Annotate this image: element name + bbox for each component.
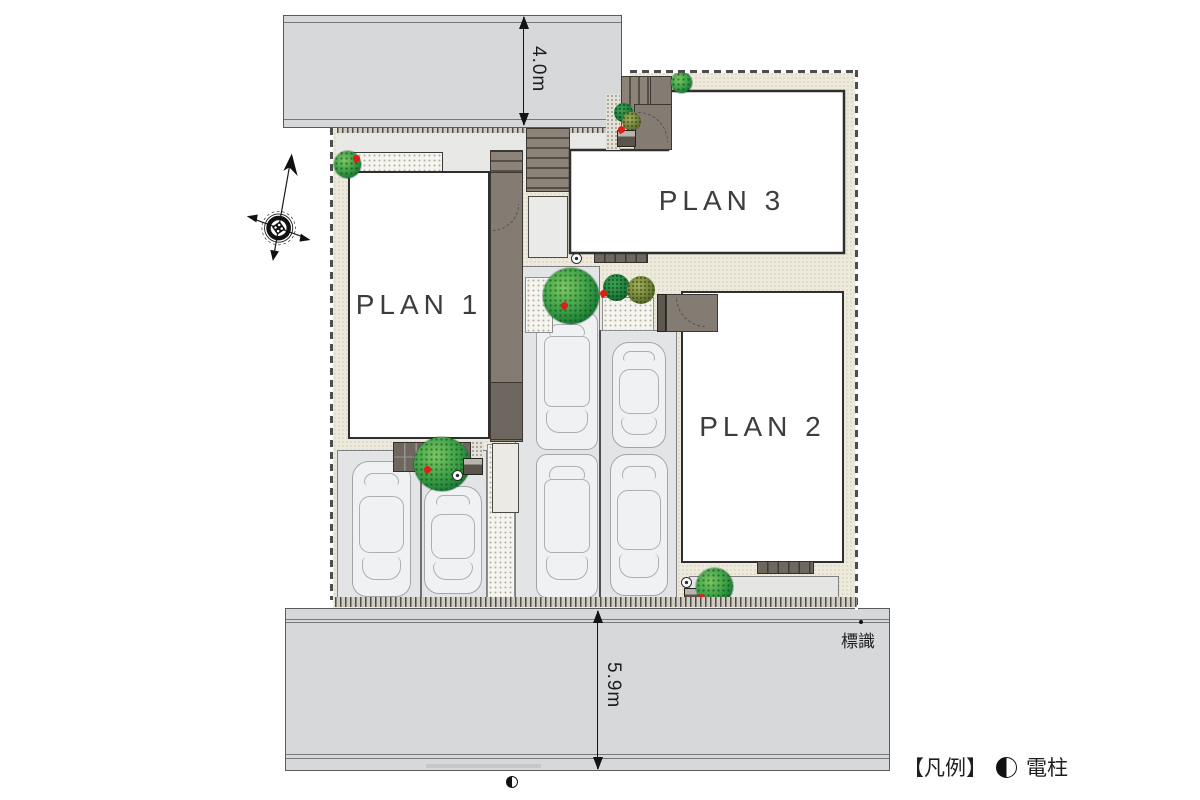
car-roof [544, 336, 591, 407]
plan1-label: PLAN 1 [348, 171, 490, 439]
van [536, 454, 598, 598]
road-edge-line [286, 754, 889, 755]
north-compass-icon [228, 139, 337, 278]
road-edge-line [284, 22, 621, 23]
car [610, 454, 668, 596]
car-rear-window [436, 495, 470, 505]
curb-cut [426, 764, 541, 768]
road-edge-line [286, 622, 889, 623]
car [352, 461, 411, 597]
utility-box-icon [463, 458, 483, 475]
car-windshield [546, 556, 588, 580]
power-pole-legend-icon [996, 757, 1017, 778]
plan2-porch-hatch [757, 561, 814, 574]
bush-icon [627, 276, 655, 304]
car-roof [359, 496, 403, 554]
car-roof [544, 479, 591, 553]
legend: 【凡例】 電柱 [903, 752, 1068, 782]
car-rear-window [623, 351, 654, 360]
road-edge-line [286, 758, 889, 759]
site-boundary-left [330, 128, 333, 600]
middle-landing-panel [528, 196, 568, 258]
site-boundary-fence [335, 597, 857, 607]
site-boundary-top [630, 70, 857, 73]
bush-icon [603, 274, 630, 301]
car-rear-window [549, 324, 585, 336]
car-rear-window [364, 473, 398, 485]
site-boundary-right [855, 70, 858, 610]
road-edge-line [286, 619, 889, 620]
site-plan-canvas: PLAN 1 PLAN 2 PLAN 3 4.0m 5.9m [0, 0, 1200, 800]
bottom-road [285, 608, 890, 771]
dimension-label-bottom-road: 5.9m [602, 662, 624, 708]
plan3-label: PLAN 3 [590, 152, 854, 250]
car [612, 342, 666, 448]
manhole-icon [681, 577, 692, 588]
middle-steps [526, 128, 570, 192]
car-roof [619, 369, 660, 414]
tree-icon [671, 72, 692, 93]
car-rear-window [622, 466, 656, 479]
car-roof [617, 490, 661, 550]
dimension-label-top-road: 4.0m [527, 46, 549, 92]
tree-icon [414, 437, 470, 491]
power-pole-icon [506, 776, 518, 788]
car-windshield [619, 554, 658, 578]
car-windshield [621, 417, 657, 435]
car-roof [431, 514, 475, 560]
plan1-entrance-steps [490, 151, 523, 173]
car-rear-window [549, 466, 585, 479]
plan1-approach-lower [490, 382, 523, 440]
car-windshield [362, 557, 402, 580]
car-windshield [546, 410, 588, 433]
car [424, 486, 482, 594]
plan1-approach-landing [492, 443, 519, 513]
parking-divider-center [599, 330, 601, 598]
road-sign-label: 標識 [841, 627, 875, 652]
tree-icon [543, 268, 599, 324]
car-windshield [433, 562, 472, 580]
dimension-arrow-bottom-road [597, 611, 598, 769]
sign-dot-icon [859, 620, 863, 624]
manhole-icon [452, 470, 463, 481]
utility-box-icon [657, 294, 666, 332]
legend-bracket-label: 【凡例】 [903, 752, 987, 782]
dimension-arrow-top-road [523, 17, 524, 125]
legend-pole-label: 電柱 [1026, 752, 1068, 782]
